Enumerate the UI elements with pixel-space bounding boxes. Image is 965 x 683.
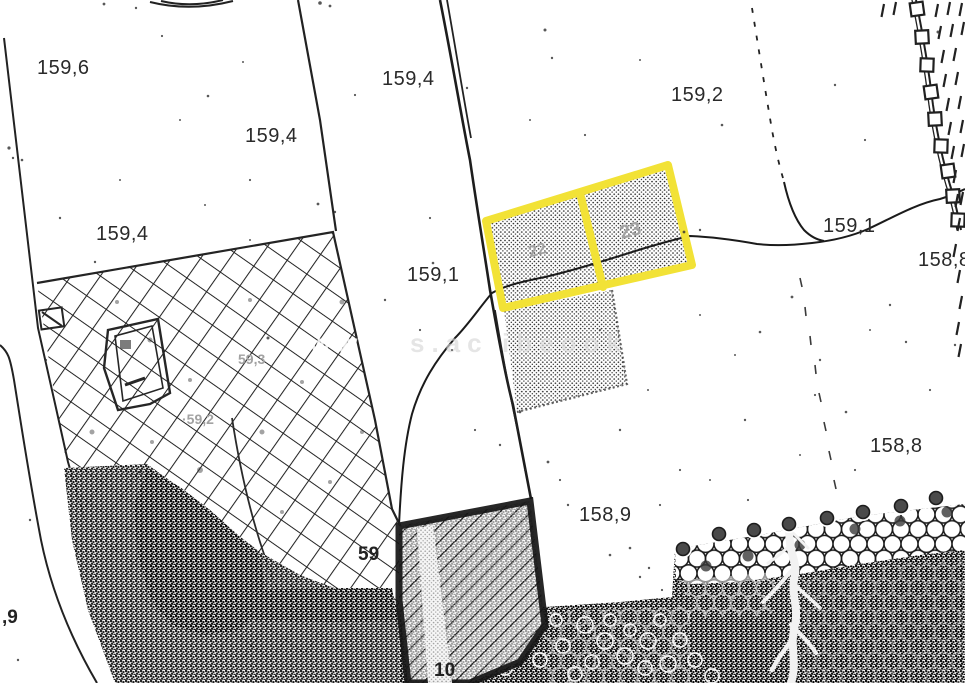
svg-text:s.ac: s.ac: [410, 328, 489, 358]
svg-text:159,2: 159,2: [671, 84, 724, 106]
svg-text:159,4: 159,4: [96, 223, 149, 245]
svg-text:159,6: 159,6: [37, 57, 90, 79]
svg-text:159,1: 159,1: [823, 215, 876, 237]
svg-text:ibeook: ibeook: [502, 328, 628, 358]
svg-text:158,8: 158,8: [918, 249, 965, 271]
svg-text:159,4: 159,4: [245, 125, 298, 147]
svg-text:159,1: 159,1: [407, 264, 460, 286]
svg-text:www: www: [309, 328, 392, 358]
svg-text:59,3: 59,3: [238, 351, 265, 367]
svg-text:·59,2: ·59,2: [182, 411, 214, 427]
svg-text:158,8: 158,8: [870, 435, 923, 457]
svg-text:59: 59: [358, 544, 379, 565]
svg-text:159,4: 159,4: [382, 68, 435, 90]
svg-text:158,9: 158,9: [579, 504, 632, 526]
svg-text:10: 10: [434, 660, 455, 681]
svg-text:,9: ,9: [2, 607, 18, 628]
